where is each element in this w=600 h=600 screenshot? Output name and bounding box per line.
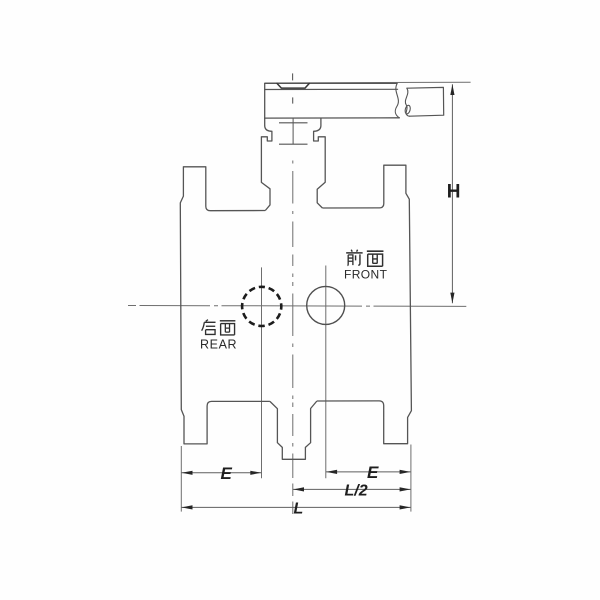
- svg-text:FRONT: FRONT: [344, 268, 388, 282]
- svg-text:L: L: [294, 501, 304, 518]
- svg-text:REAR: REAR: [200, 337, 237, 351]
- svg-text:E: E: [367, 463, 379, 482]
- svg-text:E: E: [221, 464, 233, 483]
- svg-text:L/2: L/2: [345, 483, 368, 500]
- svg-text:H: H: [447, 181, 461, 202]
